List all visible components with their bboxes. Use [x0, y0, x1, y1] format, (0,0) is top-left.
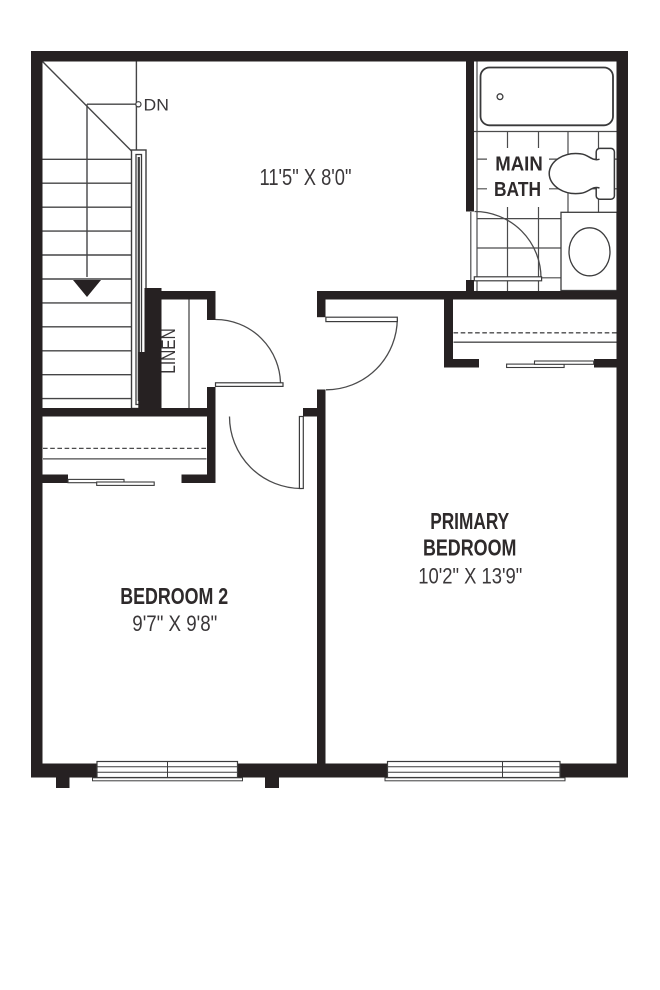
- svg-text:PRIMARY: PRIMARY: [430, 508, 509, 534]
- svg-text:BEDROOM: BEDROOM: [423, 535, 517, 561]
- svg-text:10'2" X 13'9": 10'2" X 13'9": [418, 564, 522, 589]
- svg-text:11'5" X 8'0": 11'5" X 8'0": [260, 164, 352, 190]
- svg-text:LINEN: LINEN: [158, 328, 180, 374]
- svg-text:BEDROOM 2: BEDROOM 2: [120, 583, 228, 609]
- svg-text:DN: DN: [144, 95, 169, 114]
- svg-text:MAIN: MAIN: [495, 154, 543, 176]
- svg-text:BATH: BATH: [494, 179, 541, 201]
- svg-text:9'7" X 9'8": 9'7" X 9'8": [132, 611, 217, 636]
